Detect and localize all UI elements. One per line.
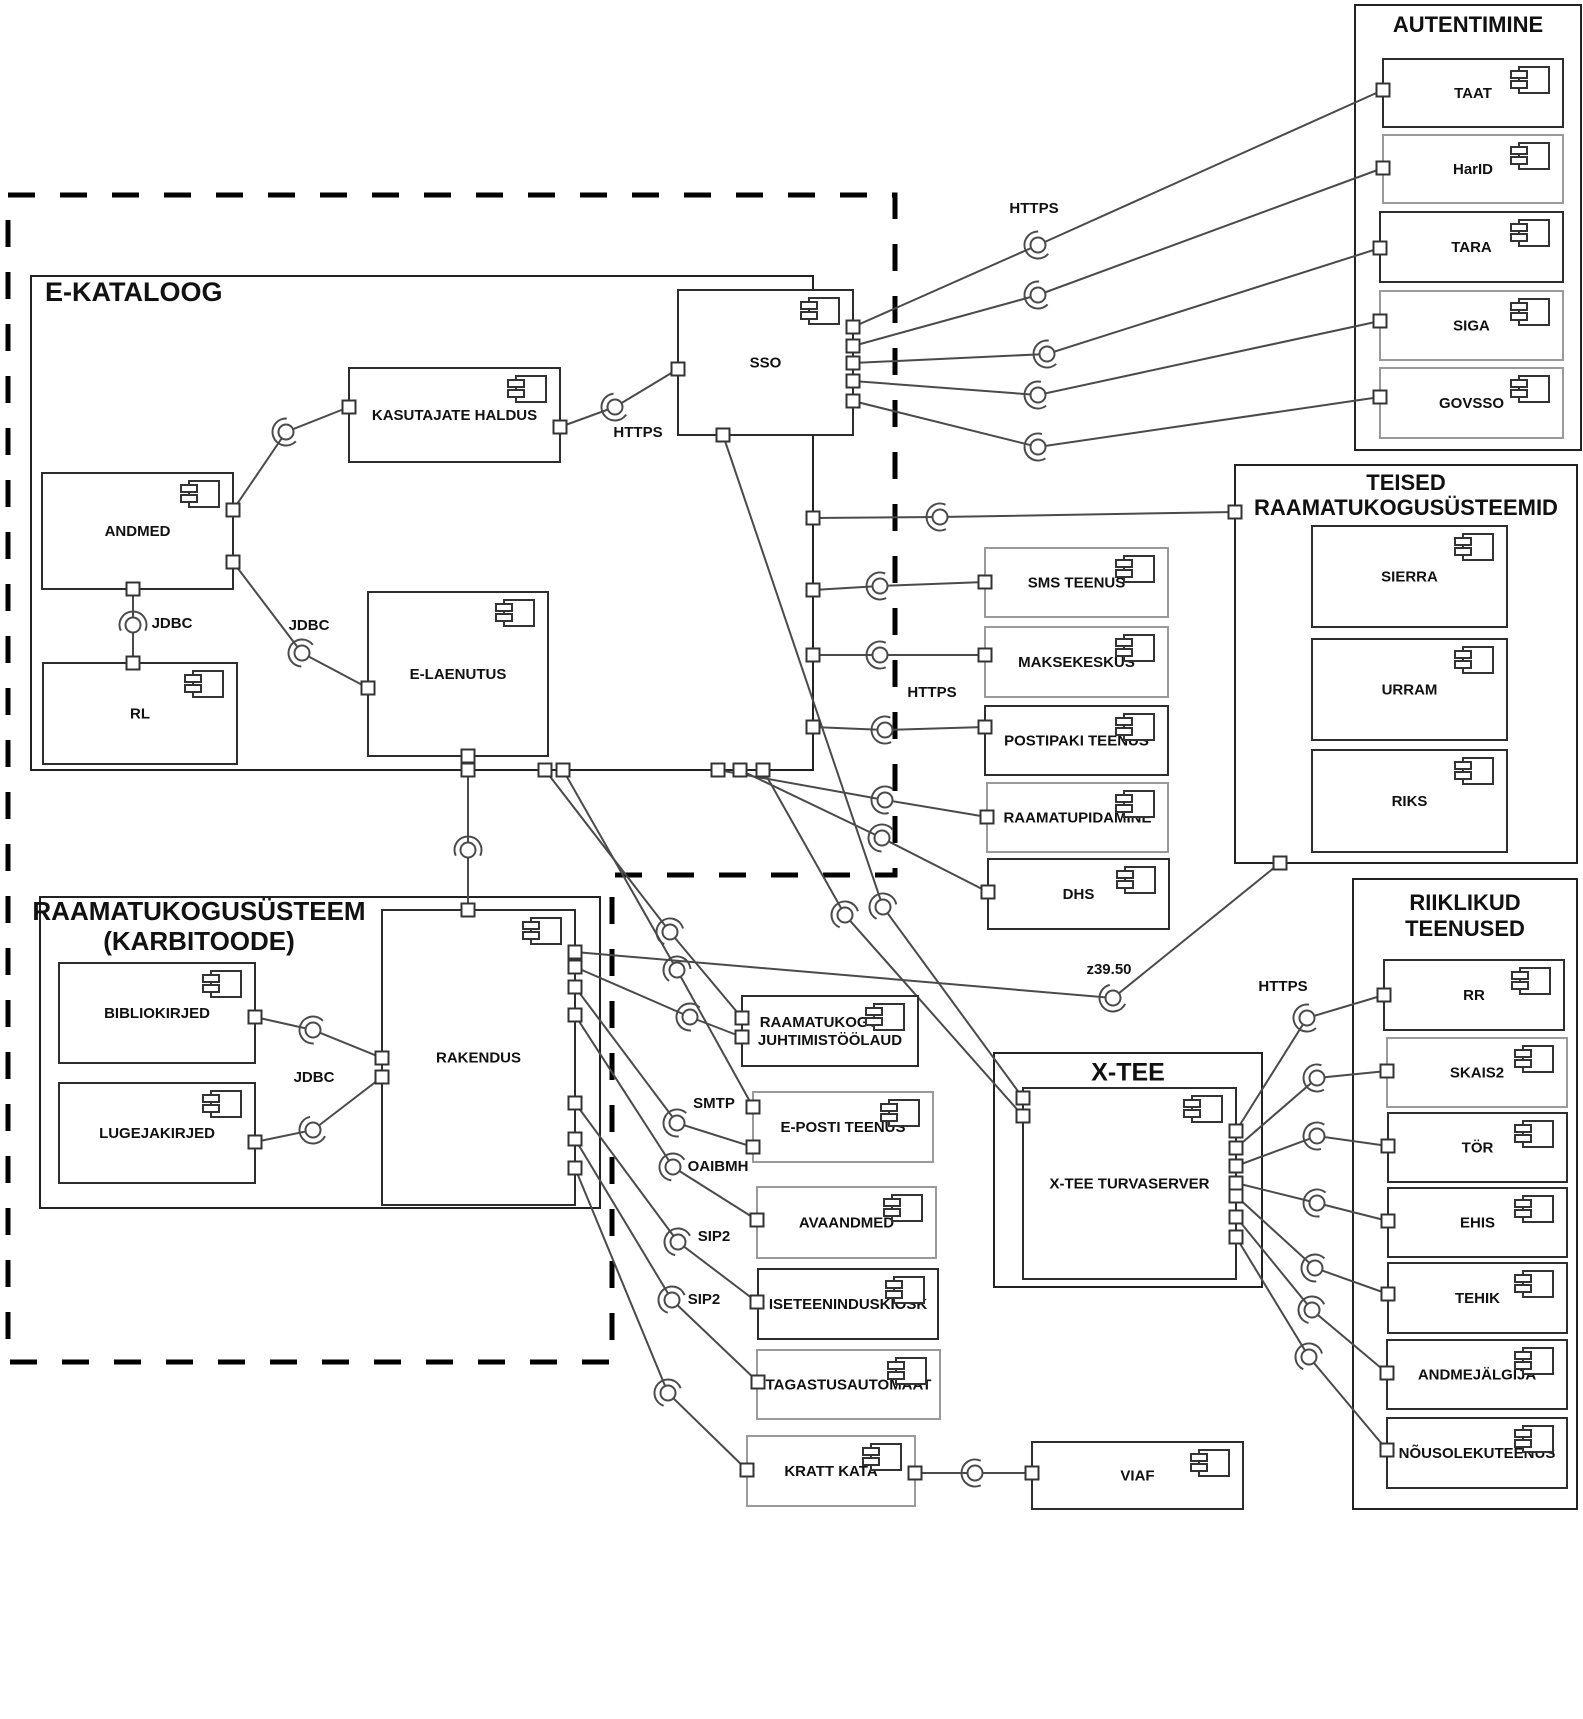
component-rr-label: RR (1463, 987, 1485, 1004)
connector-label-kasutajate-haldus-sso: HTTPS (613, 424, 662, 441)
component-govsso: GOVSSO (1380, 368, 1563, 438)
ball (295, 646, 310, 661)
component-rl: RL (43, 663, 237, 764)
port-square (1382, 1140, 1395, 1153)
port-square (1381, 1065, 1394, 1078)
component-icon-tab (508, 380, 524, 387)
component-icon-tab (181, 495, 197, 502)
component-icon-tab (1191, 1454, 1207, 1461)
port-square (747, 1141, 760, 1154)
component-nousolekuteenus: NÕUSOLEKUTEENUS (1387, 1418, 1567, 1488)
component-rr: RR (1384, 960, 1564, 1030)
ball (1310, 1129, 1325, 1144)
component-iseteeninduskiosk: ISETEENINDUSKIOSK (758, 1269, 938, 1339)
component-icon-tab (1455, 762, 1471, 769)
component-govsso-label: GOVSSO (1439, 395, 1504, 412)
component-sms-teenus: SMS TEENUS (985, 548, 1168, 617)
port-square (979, 721, 992, 734)
component-icon-tab (1512, 972, 1528, 979)
component-icon-tab (1515, 1285, 1531, 1292)
container-teised-raamatukogususteemid-title: TEISED (1366, 470, 1445, 495)
connector-label-andmed-e-laenutus: JDBC (289, 617, 330, 634)
component-sierra: SIERRA (1312, 526, 1507, 627)
component-rakendus: RAKENDUS (382, 910, 575, 1205)
component-icon-tab (1117, 881, 1133, 888)
port-square (751, 1296, 764, 1309)
ball (670, 1116, 685, 1131)
connector-label-rakendus-teised: z39.50 (1086, 961, 1131, 978)
component-icon-tab (1515, 1060, 1531, 1067)
ball (1305, 1303, 1320, 1318)
component-icon-tab (1515, 1200, 1531, 1207)
component-siga: SIGA (1380, 291, 1563, 360)
ball (126, 618, 141, 633)
component-viaf: VIAF (1032, 1442, 1243, 1509)
component-maksekeskus: MAKSEKESKUS (985, 627, 1168, 697)
connector-label-turvaserver-rr: HTTPS (1258, 978, 1307, 995)
component-raamatukogude-juhtimistoolaud: RAAMATUKOGUDEJUHTIMISTÖÖLAUD (742, 996, 918, 1066)
component-icon-tab (884, 1199, 900, 1206)
port-square (1230, 1160, 1243, 1173)
component-icon-tab (881, 1104, 897, 1111)
component-icon-tab (1511, 81, 1527, 88)
port-square (1377, 162, 1390, 175)
port-square (539, 764, 552, 777)
ball (968, 1466, 983, 1481)
component-tor: TÖR (1388, 1113, 1567, 1182)
component-icon-tab (1455, 772, 1471, 779)
component-lugejakirjed: LUGEJAKIRJED (59, 1083, 255, 1183)
component-icon-tab (1184, 1110, 1200, 1117)
port-square (1230, 1125, 1243, 1138)
component-icon-tab (1515, 1430, 1531, 1437)
ball (1031, 288, 1046, 303)
port-square (1382, 1288, 1395, 1301)
port-square (752, 1376, 765, 1389)
component-kasutajate-haldus: KASUTAJATE HALDUS (349, 368, 560, 462)
component-urram-label: URRAM (1382, 681, 1438, 698)
ball (306, 1123, 321, 1138)
component-icon-tab (1455, 548, 1471, 555)
ball (878, 723, 893, 738)
component-icon-tab (1511, 71, 1527, 78)
ball (663, 925, 678, 940)
port-square (734, 764, 747, 777)
ball (875, 831, 890, 846)
port-square (362, 682, 375, 695)
component-skais2-label: SKAIS2 (1450, 1064, 1504, 1081)
component-sso-label: SSO (750, 354, 782, 371)
component-riks: RIKS (1312, 750, 1507, 852)
port-square (1381, 1444, 1394, 1457)
port-square (249, 1011, 262, 1024)
component-rakendus-label: RAKENDUS (436, 1049, 521, 1066)
ball (1300, 1011, 1315, 1026)
diagram-canvas: E-KATALOOGRAAMATUKOGUSÜSTEEM(KARBITOODE)… (0, 0, 1583, 1719)
port-square (807, 584, 820, 597)
component-icon-tab (881, 1114, 897, 1121)
ball (1310, 1196, 1325, 1211)
component-icon-tab (866, 1018, 882, 1025)
component-icon-tab (1511, 147, 1527, 154)
port-square (847, 357, 860, 370)
ball (1302, 1350, 1317, 1365)
port-square (1274, 857, 1287, 870)
component-bibliokirjed-label: BIBLIOKIRJED (104, 1005, 210, 1022)
component-icon-tab (888, 1372, 904, 1379)
component-icon-tab (1117, 871, 1133, 878)
component-e-posti-teenus: E-POSTI TEENUS (753, 1092, 933, 1162)
component-icon-tab (1515, 1362, 1531, 1369)
port-square (569, 1133, 582, 1146)
connector-label-rakendus-iseteeninduskiosk: SIP2 (698, 1228, 731, 1245)
component-icon-tab (523, 932, 539, 939)
component-tehik-label: TEHIK (1455, 1290, 1500, 1307)
port-square (747, 1101, 760, 1114)
port-square (751, 1214, 764, 1227)
port-square (1017, 1110, 1030, 1123)
ball (671, 1235, 686, 1250)
port-square (1230, 1231, 1243, 1244)
port-square (1230, 1190, 1243, 1203)
component-tor-label: TÖR (1462, 1139, 1494, 1156)
component-icon-tab (888, 1362, 904, 1369)
component-rl-label: RL (130, 705, 150, 722)
component-icon-tab (1515, 1050, 1531, 1057)
component-ehis-label: EHIS (1460, 1214, 1495, 1231)
component-icon-tab (1511, 303, 1527, 310)
component-icon-tab (1184, 1100, 1200, 1107)
port-square (807, 649, 820, 662)
container-raamatukogususteem-karbitoode-title: RAAMATUKOGUSÜSTEEM (32, 896, 365, 926)
component-icon-tab (1455, 661, 1471, 668)
port-square (249, 1136, 262, 1149)
component-tara: TARA (1380, 212, 1563, 282)
port-square (736, 1031, 749, 1044)
component-icon-tab (886, 1291, 902, 1298)
container-riiklikud-teenused-title-line2: TEENUSED (1405, 916, 1525, 941)
port-square (1381, 1367, 1394, 1380)
component-icon-tab (1511, 234, 1527, 241)
port-square (1382, 1215, 1395, 1228)
component-icon-tab (1191, 1464, 1207, 1471)
component-urram: URRAM (1312, 639, 1507, 740)
component-icon-tab (203, 975, 219, 982)
component-icon-tab (185, 685, 201, 692)
component-viaf-label: VIAF (1120, 1467, 1154, 1484)
port-square (569, 961, 582, 974)
container-e-kataloog-title: E-KATALOOG (45, 277, 222, 307)
connector-label-e-kataloog-postipaki: HTTPS (907, 684, 956, 701)
component-kratt-kata: KRATT KATA (747, 1436, 915, 1506)
component-tehik: TEHIK (1388, 1263, 1567, 1333)
port-square (1026, 1467, 1039, 1480)
port-square (736, 1012, 749, 1025)
component-icon-tab (1116, 718, 1132, 725)
component-icon-tab (801, 312, 817, 319)
ball (933, 510, 948, 525)
component-icon-tab (863, 1448, 879, 1455)
component-icon-tab (203, 1105, 219, 1112)
port-square (1017, 1092, 1030, 1105)
ball (461, 843, 476, 858)
component-dhs: DHS (988, 859, 1169, 929)
component-icon-tab (1116, 560, 1132, 567)
component-andmejalgija: ANDMEJÄLGIJA (1387, 1340, 1567, 1409)
component-sso: SSO (678, 290, 853, 435)
ball (683, 1010, 698, 1025)
port-square (569, 1162, 582, 1175)
component-e-laenutus-label: E-LAENUTUS (410, 666, 507, 683)
port-square (1374, 242, 1387, 255)
port-square (462, 764, 475, 777)
ball (876, 900, 891, 915)
port-square (807, 721, 820, 734)
port-square (982, 886, 995, 899)
ball (1106, 991, 1121, 1006)
component-icon-tab (1116, 805, 1132, 812)
port-square (1377, 84, 1390, 97)
port-square (376, 1071, 389, 1084)
uml-component-diagram: E-KATALOOGRAAMATUKOGUSÜSTEEM(KARBITOODE)… (0, 0, 1583, 1719)
connector-label-andmed-rl: JDBC (152, 615, 193, 632)
component-icon-tab (1116, 649, 1132, 656)
ball (306, 1023, 321, 1038)
component-kasutajate-haldus-label: KASUTAJATE HALDUS (372, 407, 537, 424)
port-square (462, 750, 475, 763)
component-icon-tab (1455, 651, 1471, 658)
component-icon-tab (1511, 224, 1527, 231)
container-riiklikud-teenused-title: RIIKLIKUD (1409, 890, 1520, 915)
connector-label-bibliokirjed-rakendus: JDBC (294, 1069, 335, 1086)
component-icon-tab (1511, 157, 1527, 164)
port-square (127, 657, 140, 670)
component-x-tee-turvaserver-label: X-TEE TURVASERVER (1049, 1175, 1209, 1192)
component-sierra-label: SIERRA (1381, 568, 1438, 585)
component-harid: HarID (1383, 135, 1563, 203)
component-icon-tab (1515, 1125, 1531, 1132)
port-square (979, 649, 992, 662)
component-riks-label: RIKS (1392, 793, 1428, 810)
port-square (847, 395, 860, 408)
connector-label-rakendus-avaandmed: OAIBMH (688, 1158, 749, 1175)
port-square (376, 1052, 389, 1065)
component-x-tee-turvaserver: X-TEE TURVASERVER (1023, 1088, 1236, 1279)
component-icon-tab (866, 1008, 882, 1015)
component-icon-tab (185, 675, 201, 682)
component-icon-tab (1515, 1135, 1531, 1142)
ball (665, 1293, 680, 1308)
component-taat: TAAT (1383, 59, 1563, 127)
component-icon-tab (884, 1209, 900, 1216)
connector-label-rakendus-e-posti: SMTP (693, 1095, 735, 1112)
ball (873, 648, 888, 663)
ball (1031, 238, 1046, 253)
component-icon-tab (1511, 380, 1527, 387)
container-raamatukogususteem-karbitoode-title-line2: (KARBITOODE) (103, 926, 295, 956)
port-square (909, 1467, 922, 1480)
port-square (847, 375, 860, 388)
component-sms-teenus-label: SMS TEENUS (1028, 574, 1126, 591)
component-icon-tab (801, 302, 817, 309)
port-square (1229, 506, 1242, 519)
component-postipaki-teenus: POSTIPAKI TEENUS (985, 706, 1168, 775)
ball (670, 963, 685, 978)
component-siga-label: SIGA (1453, 317, 1490, 334)
component-avaandmed: AVAANDMED (757, 1187, 936, 1258)
component-tagastusautomaat: TAGASTUSAUTOMAAT (757, 1350, 940, 1419)
port-square (757, 764, 770, 777)
component-icon-tab (1512, 982, 1528, 989)
port-square (741, 1464, 754, 1477)
port-square (1374, 315, 1387, 328)
connector-label-sso-taat: HTTPS (1009, 200, 1058, 217)
component-icon-tab (523, 922, 539, 929)
port-square (343, 401, 356, 414)
port-square (1374, 391, 1387, 404)
port-square (227, 504, 240, 517)
component-icon-tab (1511, 313, 1527, 320)
ball (1031, 440, 1046, 455)
port-square (569, 981, 582, 994)
port-square (1230, 1142, 1243, 1155)
component-icon-tab (1116, 728, 1132, 735)
component-icon-tab (496, 604, 512, 611)
component-dhs-label: DHS (1063, 886, 1095, 903)
component-icon-tab (508, 390, 524, 397)
component-harid-label: HarID (1453, 161, 1493, 178)
ball (1040, 347, 1055, 362)
component-ehis: EHIS (1388, 1188, 1567, 1257)
component-lugejakirjed-label: LUGEJAKIRJED (99, 1125, 215, 1142)
component-andmed: ANDMED (42, 473, 233, 589)
component-bibliokirjed: BIBLIOKIRJED (59, 963, 255, 1063)
port-square (807, 512, 820, 525)
port-square (847, 340, 860, 353)
port-square (569, 946, 582, 959)
component-icon-tab (1116, 639, 1132, 646)
port-square (847, 321, 860, 334)
container-autentimine-title: AUTENTIMINE (1393, 12, 1543, 37)
component-icon-tab (1116, 795, 1132, 802)
container-x-tee-title: X-TEE (1091, 1059, 1165, 1087)
ball (873, 579, 888, 594)
ball (661, 1386, 676, 1401)
component-icon-tab (863, 1458, 879, 1465)
port-square (981, 811, 994, 824)
port-square (557, 764, 570, 777)
component-skais2: SKAIS2 (1387, 1038, 1567, 1107)
component-icon-tab (203, 985, 219, 992)
port-square (569, 1097, 582, 1110)
port-square (1230, 1177, 1243, 1190)
component-andmed-label: ANDMED (105, 523, 171, 540)
port-square (554, 421, 567, 434)
component-icon-tab (1515, 1275, 1531, 1282)
ball (1310, 1071, 1325, 1086)
port-square (712, 764, 725, 777)
component-avaandmed-label: AVAANDMED (799, 1214, 894, 1231)
ball (666, 1160, 681, 1175)
port-square (462, 904, 475, 917)
connector-label-rakendus-tagastusautomaat: SIP2 (688, 1291, 721, 1308)
port-square (979, 576, 992, 589)
port-square (1378, 989, 1391, 1002)
ball (608, 400, 623, 415)
component-icon-tab (1515, 1440, 1531, 1447)
port-square (1230, 1211, 1243, 1224)
container-teised-raamatukogususteemid-title-line2: RAAMATUKOGUSÜSTEEMID (1254, 495, 1558, 520)
component-icon-tab (1116, 570, 1132, 577)
ball (838, 908, 853, 923)
component-icon-tab (496, 614, 512, 621)
port-square (569, 1009, 582, 1022)
component-icon-tab (203, 1095, 219, 1102)
component-tara-label: TARA (1451, 239, 1492, 256)
component-e-laenutus: E-LAENUTUS (368, 592, 548, 756)
port-square (717, 429, 730, 442)
port-square (127, 583, 140, 596)
component-raamatukogude-juhtimistoolaud-label-line2: JUHTIMISTÖÖLAUD (758, 1032, 902, 1049)
port-square (227, 556, 240, 569)
component-raamatupidamine: RAAMATUPIDAMINE (987, 783, 1168, 852)
ball (878, 793, 893, 808)
ball (1308, 1261, 1323, 1276)
port-square (672, 363, 685, 376)
component-icon-tab (1511, 390, 1527, 397)
component-icon-tab (1515, 1210, 1531, 1217)
ball (279, 425, 294, 440)
component-icon-tab (1455, 538, 1471, 545)
component-icon-tab (1515, 1352, 1531, 1359)
ball (1031, 388, 1046, 403)
component-taat-label: TAAT (1454, 85, 1492, 102)
component-icon-tab (886, 1281, 902, 1288)
component-icon-tab (181, 485, 197, 492)
